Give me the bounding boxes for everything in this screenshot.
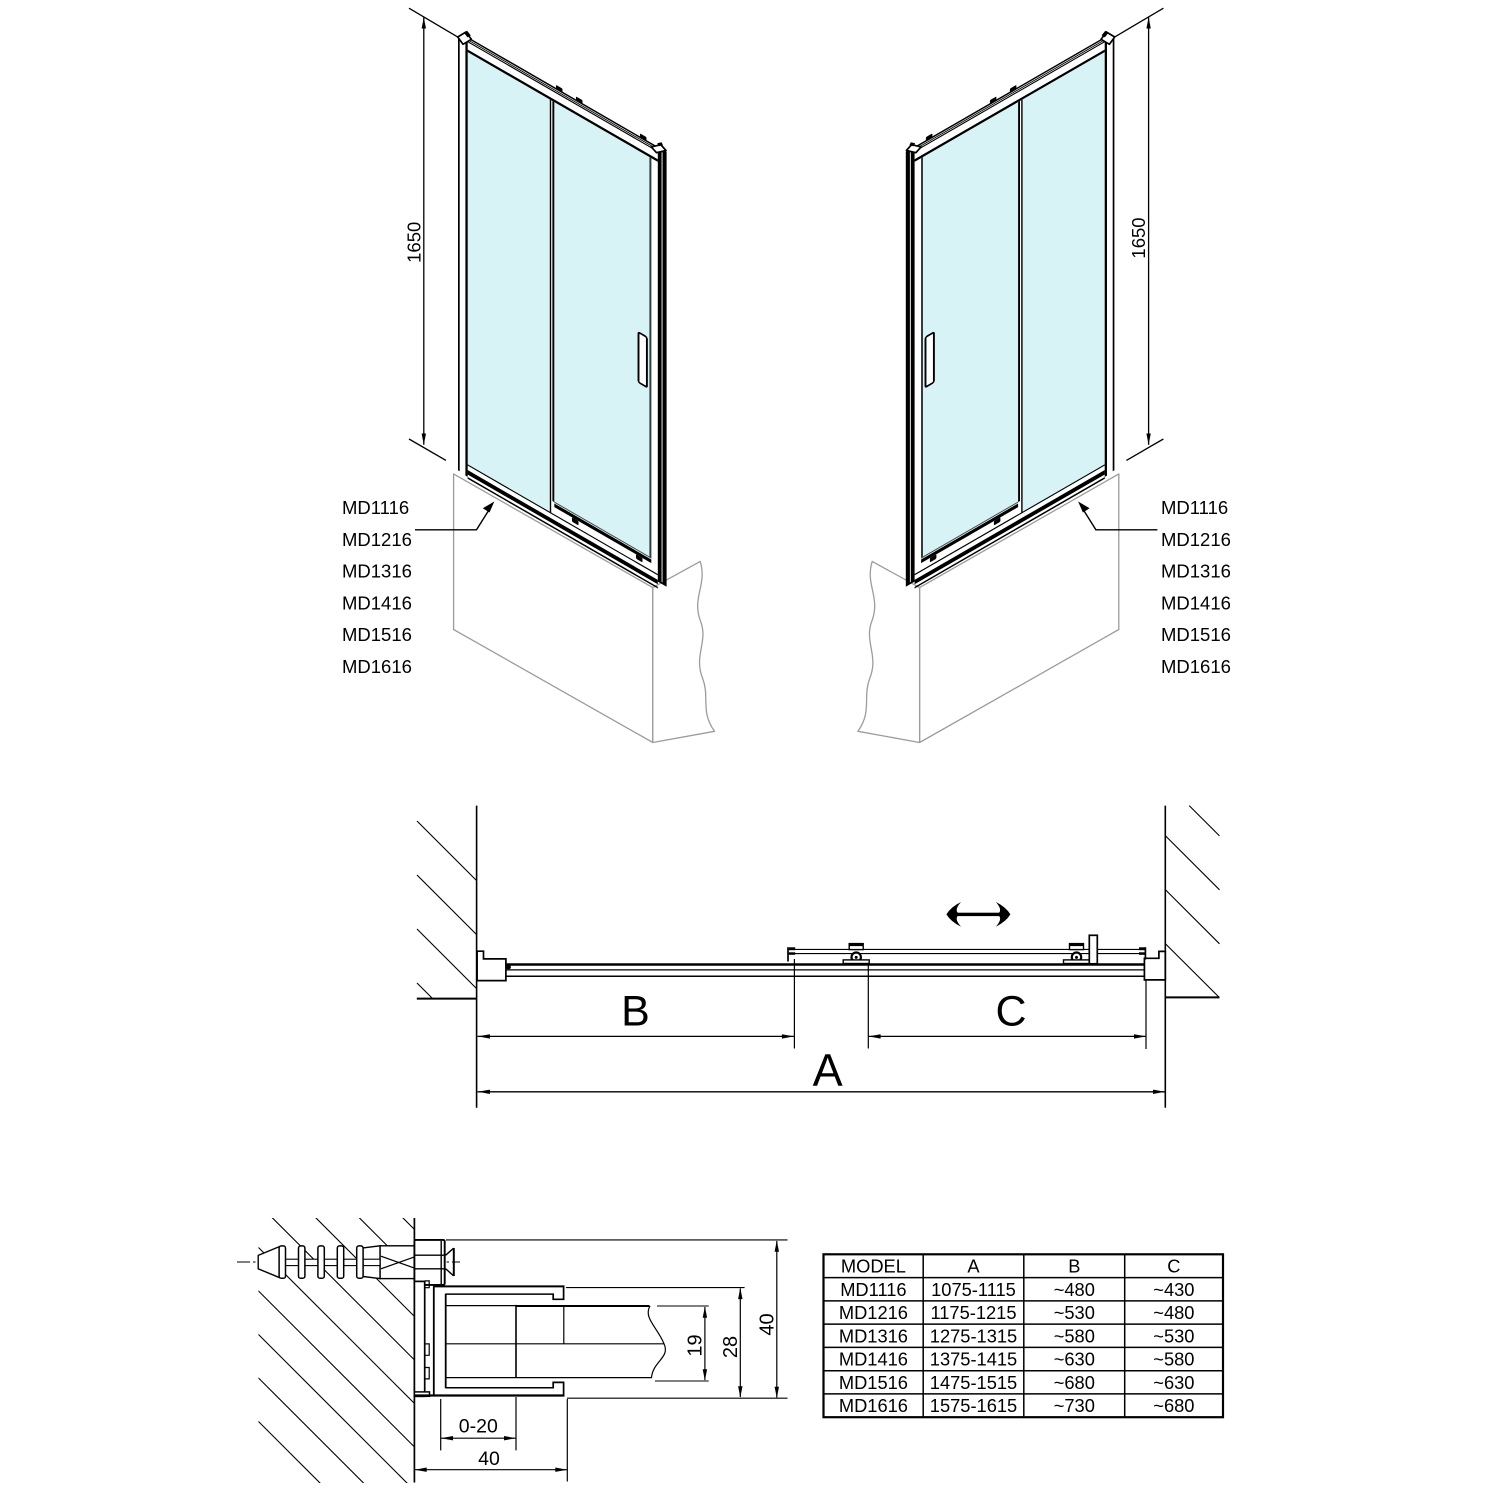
svg-text:MD1616: MD1616 (342, 656, 412, 677)
svg-text:A: A (813, 1045, 843, 1096)
svg-text:1650: 1650 (1128, 217, 1149, 258)
svg-text:~580: ~580 (1054, 1325, 1095, 1346)
svg-text:MD1316: MD1316 (342, 561, 412, 582)
svg-text:MD1416: MD1416 (342, 592, 412, 613)
svg-text:~530: ~530 (1054, 1302, 1095, 1323)
svg-text:1175-1215: 1175-1215 (930, 1302, 1016, 1323)
svg-text:MD1616: MD1616 (1161, 656, 1231, 677)
svg-text:~680: ~680 (1153, 1395, 1194, 1416)
svg-text:~680: ~680 (1054, 1372, 1095, 1393)
svg-text:1650: 1650 (403, 222, 424, 263)
svg-text:1575-1615: 1575-1615 (930, 1395, 1017, 1416)
svg-text:~630: ~630 (1054, 1349, 1095, 1370)
svg-text:MD1116: MD1116 (840, 1279, 906, 1300)
svg-text:MD1116: MD1116 (1161, 497, 1228, 518)
svg-text:MD1216: MD1216 (1161, 529, 1231, 550)
svg-text:40: 40 (757, 1313, 779, 1335)
svg-text:~480: ~480 (1054, 1279, 1095, 1300)
svg-text:MD1516: MD1516 (1161, 624, 1231, 645)
svg-text:MD1516: MD1516 (839, 1372, 908, 1393)
svg-text:MD1616: MD1616 (839, 1395, 908, 1416)
svg-text:C: C (1167, 1256, 1180, 1277)
svg-text:A: A (967, 1256, 980, 1277)
svg-text:~480: ~480 (1153, 1302, 1194, 1323)
svg-text:0-20: 0-20 (459, 1416, 498, 1438)
svg-text:40: 40 (478, 1448, 500, 1470)
svg-text:MD1416: MD1416 (839, 1349, 908, 1370)
svg-text:MD1216: MD1216 (342, 529, 412, 550)
svg-text:~530: ~530 (1153, 1325, 1194, 1346)
svg-text:MODEL: MODEL (841, 1256, 906, 1277)
svg-text:MD1116: MD1116 (342, 497, 409, 518)
svg-text:B: B (1068, 1256, 1080, 1277)
svg-text:MD1216: MD1216 (839, 1302, 908, 1323)
svg-text:1375-1415: 1375-1415 (930, 1349, 1017, 1370)
svg-text:B: B (621, 988, 650, 1036)
svg-text:1475-1515: 1475-1515 (930, 1372, 1017, 1393)
svg-text:MD1416: MD1416 (1161, 592, 1231, 613)
svg-text:MD1516: MD1516 (342, 624, 412, 645)
svg-text:1075-1115: 1075-1115 (931, 1279, 1016, 1300)
svg-text:28: 28 (720, 1336, 742, 1358)
svg-text:~430: ~430 (1153, 1279, 1194, 1300)
svg-text:~630: ~630 (1153, 1372, 1194, 1393)
svg-text:1275-1315: 1275-1315 (930, 1325, 1017, 1346)
svg-text:MD1316: MD1316 (1161, 561, 1231, 582)
svg-text:19: 19 (685, 1334, 707, 1356)
svg-text:~580: ~580 (1153, 1349, 1194, 1370)
svg-text:C: C (995, 988, 1026, 1036)
svg-text:MD1316: MD1316 (839, 1325, 908, 1346)
svg-text:~730: ~730 (1054, 1395, 1095, 1416)
